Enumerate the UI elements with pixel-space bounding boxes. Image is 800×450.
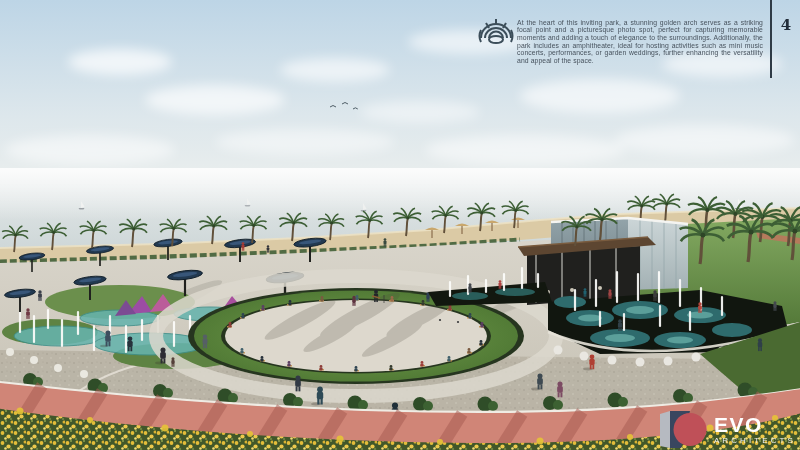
header-divider <box>770 0 772 78</box>
logo-brand: EVO <box>714 414 796 435</box>
slide-description: At the heart of this inviting park, a st… <box>517 19 763 65</box>
presentation-slide: At the heart of this inviting park, a st… <box>0 0 800 450</box>
park-render <box>0 0 800 450</box>
footer-logo: EVO ARCHITECTS <box>660 411 796 448</box>
logo-tagline: ARCHITECTS <box>714 437 796 445</box>
page-number: 4 <box>776 16 796 34</box>
amphitheater-icon <box>477 13 515 49</box>
evo-logo-icon <box>660 411 707 448</box>
